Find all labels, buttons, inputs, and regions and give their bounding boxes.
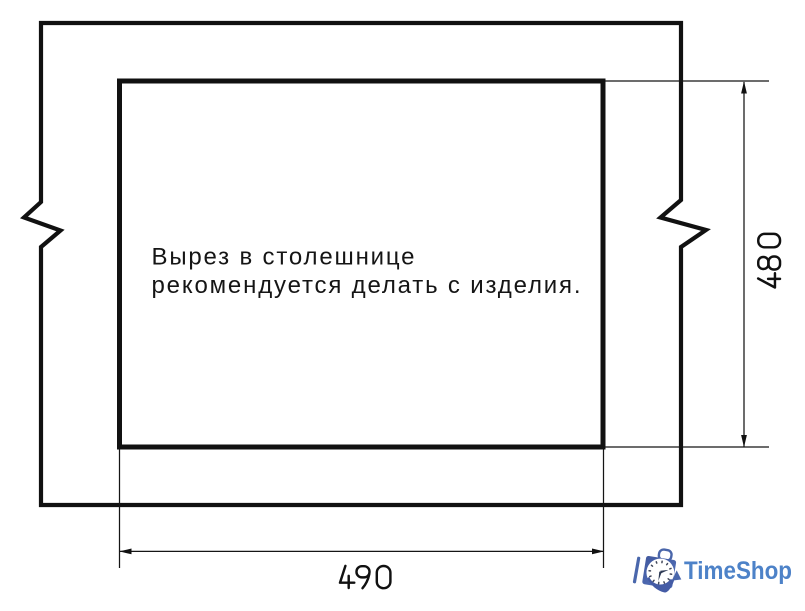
svg-text:рекомендуется делать с изделия: рекомендуется делать с изделия. [152, 272, 581, 299]
svg-text:Вырез в столешнице: Вырез в столешнице [152, 244, 415, 271]
svg-text:TimeShop: TimeShop [684, 557, 792, 585]
